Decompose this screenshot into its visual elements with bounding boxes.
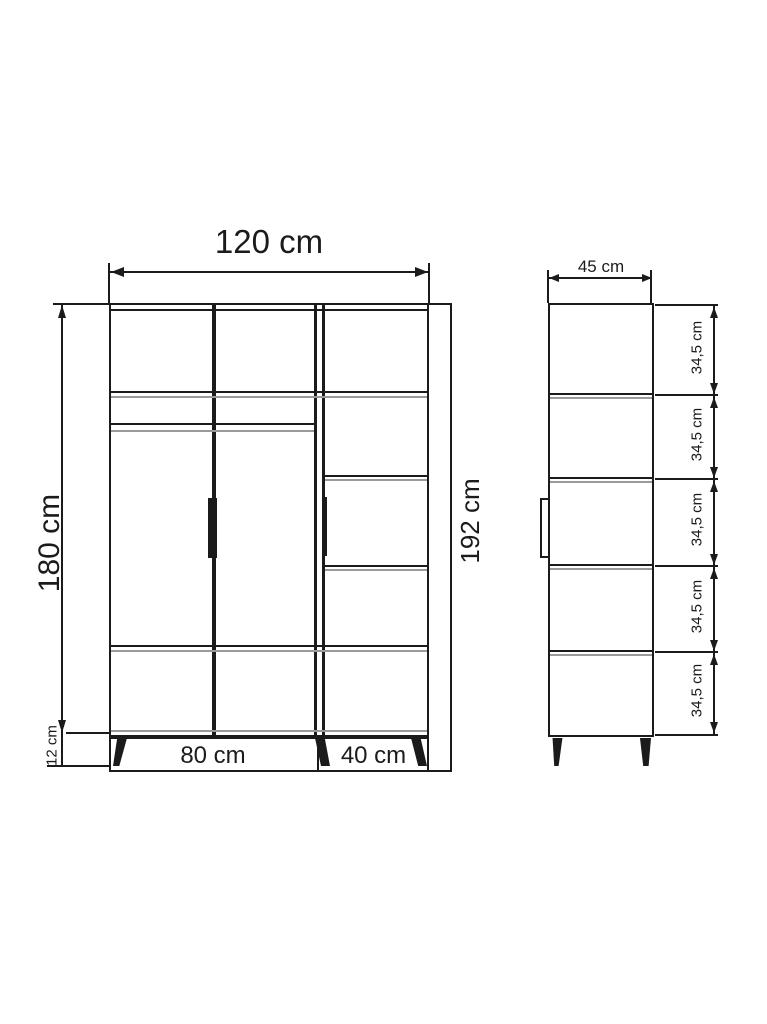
side-shelf-line [550,397,652,399]
side-compartment-height-label: 34,5 cm [690,308,705,388]
side-shelf-line [550,650,652,652]
front-leg-height-label: 12 cm [45,711,60,781]
dim-tick [66,732,109,734]
front-small-door-handle [322,497,327,556]
front-left-section-label: 80 cm [123,743,303,769]
dim-extension-line [428,263,430,304]
side-compartment-height-label: 34,5 cm [690,395,705,475]
dim-tick [655,478,718,480]
front-shelf-line [111,391,427,393]
front-total-height-label: 192 cm [457,461,483,581]
dim-extension-line [547,270,549,303]
dim-extension-line [650,270,652,303]
wardrobe-dimension-diagram: 120 cm 80 cm 40 cm 180 cm 12 cm [0,0,767,1024]
dim-extension-line [108,263,110,304]
side-shelf-line [550,477,652,479]
front-leg-dim-line [61,733,63,766]
front-cabinet-outline [109,303,429,737]
front-double-door-handle [208,498,217,558]
dim-tick [429,770,452,772]
arrowhead-down-icon [710,554,718,565]
side-compartment-height-label: 34,5 cm [690,651,705,731]
side-shelf-line [550,481,652,483]
front-right-section-label: 40 cm [318,743,429,769]
front-top-panel-line [111,309,427,311]
front-base-panel-line [111,730,427,732]
side-cabinet-outline [548,303,654,737]
side-depth-label: 45 cm [561,258,641,277]
side-leg [552,738,563,766]
front-right-shelf-line [325,479,427,481]
side-door-handle [540,498,550,558]
side-compartments-dim-line [713,305,715,735]
dim-tick [655,651,718,653]
dim-tick [655,734,718,736]
side-shelf-line [550,654,652,656]
arrowhead-up-icon [710,397,718,408]
front-section-divider [314,305,317,735]
arrowhead-left-icon [549,274,559,282]
arrowhead-left-icon [111,267,124,277]
arrowhead-down-icon [710,722,718,733]
dim-tick [655,394,718,396]
side-shelf-line [550,393,652,395]
side-leg [639,738,651,766]
front-width-dim-line [110,271,428,273]
front-bottom-shelf-line [111,650,427,652]
front-right-shelf-line [325,565,427,567]
front-bottom-shelf-line [111,645,427,647]
arrowhead-right-icon [415,267,428,277]
side-shelf-line [550,568,652,570]
front-width-label: 120 cm [149,224,389,260]
arrowhead-up-icon [710,568,718,579]
arrowhead-up-icon [710,481,718,492]
front-right-shelf-line [325,569,427,571]
dim-tick [655,304,718,306]
dim-tick [429,303,452,305]
front-hanging-rod-line [111,423,314,425]
dim-tick [655,565,718,567]
side-compartment-height-label: 34,5 cm [690,480,705,560]
side-shelf-line [550,564,652,566]
front-hanging-rod-line [111,430,314,432]
front-body-height-label: 180 cm [35,473,65,613]
front-shelf-line [111,396,427,398]
side-compartment-height-label: 34,5 cm [690,567,705,647]
arrowhead-up-icon [710,307,718,318]
arrowhead-down-icon [710,467,718,478]
arrowhead-down-icon [710,640,718,651]
front-total-height-dim-line [450,303,452,772]
arrowhead-up-icon [58,305,66,318]
side-depth-dim-line [548,277,652,279]
arrowhead-up-icon [710,654,718,665]
front-right-shelf-line [325,475,427,477]
arrowhead-down-icon [710,383,718,394]
